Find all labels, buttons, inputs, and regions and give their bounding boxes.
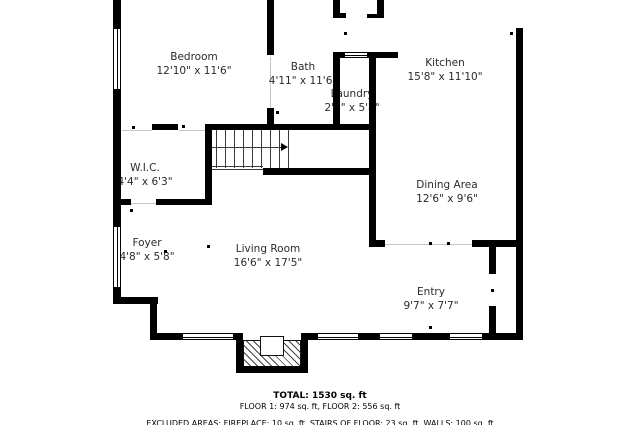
door-tick	[130, 209, 133, 212]
wall-segment	[369, 240, 385, 247]
room-dimensions: 16'6" x 17'5"	[234, 256, 302, 270]
room-name: Bedroom	[156, 50, 231, 64]
wall-segment	[150, 333, 184, 340]
room-dimensions: 12'10" x 11'6"	[156, 64, 231, 78]
door-tick	[344, 32, 347, 35]
window	[317, 333, 359, 340]
room-name: Foyer	[119, 236, 174, 250]
floor-plan-page: Bedroom12'10" x 11'6"Bath4'11" x 11'6"Ki…	[0, 0, 640, 425]
window	[449, 333, 483, 340]
door-tick	[510, 32, 513, 35]
stair-tread-line	[216, 128, 217, 168]
door-tick	[182, 125, 185, 128]
stair-tread-line	[252, 128, 253, 168]
room-label-w-i-c: W.I.C.4'4" x 6'3"	[117, 161, 172, 189]
room-dimensions: 12'6" x 9'6"	[416, 192, 478, 206]
door-tick	[429, 326, 432, 329]
plan-footer: TOTAL: 1530 sq. ft FLOOR 1: 974 sq. ft, …	[0, 391, 640, 412]
room-label-kitchen: Kitchen15'8" x 11'10"	[407, 56, 482, 84]
room-name: Dining Area	[416, 178, 478, 192]
wall-segment	[113, 88, 121, 228]
stair-direction-line	[208, 147, 282, 148]
window	[379, 333, 413, 340]
room-name: Bath	[269, 60, 337, 74]
wall-segment	[205, 124, 212, 205]
wall-segment	[113, 0, 121, 30]
room-name: Living Room	[234, 242, 302, 256]
room-label-bath: Bath4'11" x 11'6"	[269, 60, 337, 88]
door-tick	[276, 111, 279, 114]
stair-tread-line	[234, 128, 235, 168]
total-area-text: TOTAL: 1530 sq. ft	[0, 391, 640, 402]
room-dimensions: 15'8" x 11'10"	[407, 70, 482, 84]
wall-segment	[369, 52, 376, 247]
room-dimensions: 4'4" x 6'3"	[117, 175, 172, 189]
room-label-dining-area: Dining Area12'6" x 9'6"	[416, 178, 478, 206]
wall-segment	[113, 199, 131, 205]
wall-segment	[236, 366, 308, 373]
excluded-areas-text: EXCLUDED AREAS: FIREPLACE: 10 sq. ft, ST…	[0, 419, 640, 425]
door-tick	[164, 250, 167, 253]
room-name: Entry	[403, 285, 458, 299]
wall-segment	[489, 306, 496, 336]
wall-segment	[263, 168, 376, 175]
window	[344, 52, 368, 58]
stair-tread-line	[288, 128, 289, 168]
door-tick	[491, 289, 494, 292]
stair-tread-line	[261, 128, 262, 168]
door-opening-line	[179, 130, 205, 131]
room-dimensions: 4'11" x 11'6"	[269, 74, 337, 88]
window	[182, 333, 234, 340]
wall-segment	[357, 333, 381, 340]
room-name: W.I.C.	[117, 161, 172, 175]
room-label-entry: Entry9'7" x 7'7"	[403, 285, 458, 313]
floor-areas-text: FLOOR 1: 974 sq. ft, FLOOR 2: 556 sq. ft	[0, 402, 640, 412]
door-tick	[429, 242, 432, 245]
stair-tread-line	[243, 128, 244, 168]
window	[113, 226, 121, 288]
wall-segment	[367, 14, 379, 18]
wall-segment	[267, 0, 274, 55]
door-tick	[447, 242, 450, 245]
wall-segment	[516, 28, 523, 340]
door-opening-line	[131, 203, 156, 204]
room-label-bedroom: Bedroom12'10" x 11'6"	[156, 50, 231, 78]
wall-segment	[152, 124, 178, 130]
wall-segment	[333, 13, 346, 18]
room-label-living-room: Living Room16'6" x 17'5"	[234, 242, 302, 270]
stair-edge-line	[207, 166, 263, 167]
stair-tread-line	[270, 128, 271, 168]
window	[113, 28, 121, 90]
stair-tread-line	[225, 128, 226, 168]
stair-tread-line	[279, 128, 280, 168]
stair-edge-line	[207, 169, 263, 170]
wall-segment	[489, 247, 496, 274]
stair-direction-arrow-icon	[281, 143, 288, 151]
door-tick	[207, 245, 210, 248]
wall-segment	[411, 333, 451, 340]
fireplace-firebox	[260, 336, 284, 356]
wall-segment	[205, 124, 375, 130]
door-opening-line	[122, 130, 152, 131]
wall-segment	[333, 52, 340, 128]
door-tick	[132, 126, 135, 129]
wall-segment	[156, 199, 212, 205]
wall-segment	[472, 240, 523, 247]
door-tick	[372, 170, 375, 173]
room-name: Kitchen	[407, 56, 482, 70]
door-opening-line	[384, 244, 472, 245]
door-tick	[269, 111, 272, 114]
room-dimensions: 9'7" x 7'7"	[403, 299, 458, 313]
